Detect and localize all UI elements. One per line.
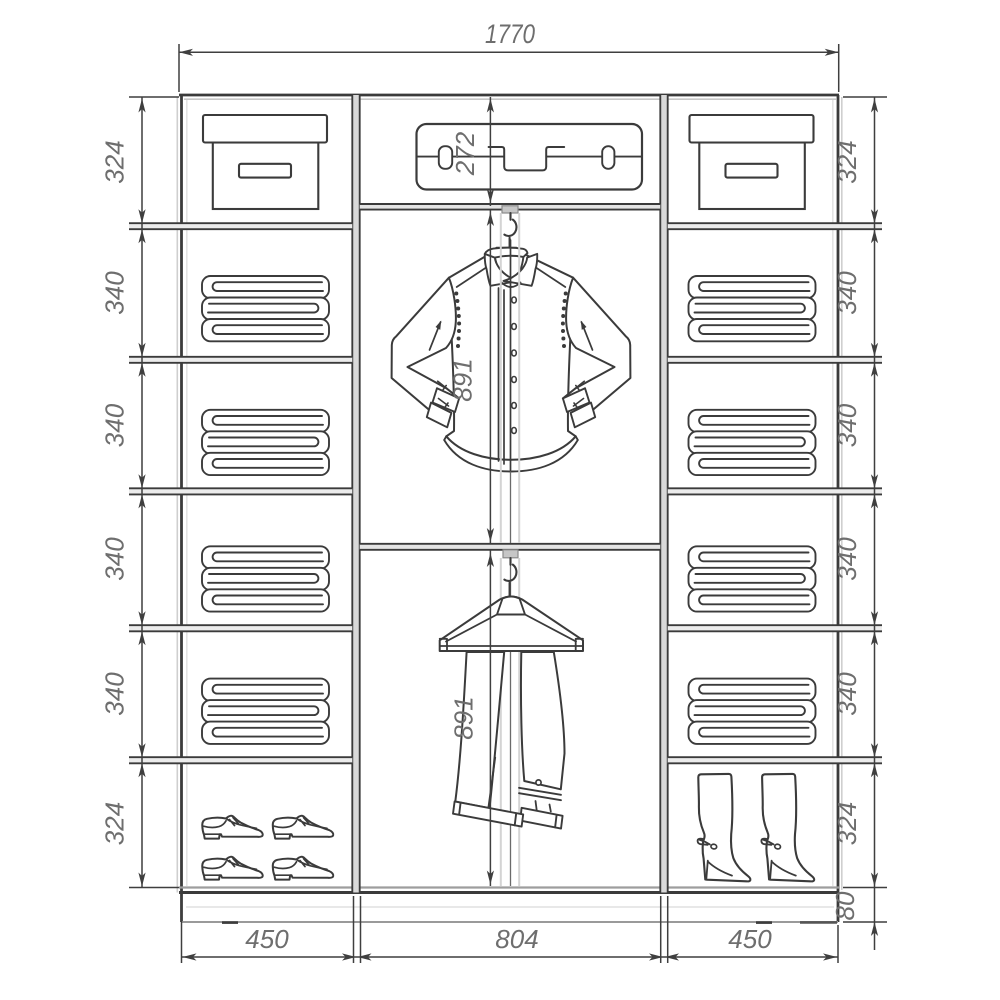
svg-text:450: 450 bbox=[245, 924, 289, 954]
svg-text:324: 324 bbox=[832, 802, 862, 845]
svg-text:804: 804 bbox=[495, 924, 538, 954]
svg-text:324: 324 bbox=[100, 802, 130, 845]
svg-text:1770: 1770 bbox=[485, 19, 535, 49]
svg-text:340: 340 bbox=[100, 271, 130, 315]
svg-text:891: 891 bbox=[449, 696, 479, 739]
svg-text:80: 80 bbox=[830, 891, 860, 920]
svg-text:340: 340 bbox=[100, 537, 130, 581]
svg-text:324: 324 bbox=[832, 140, 862, 183]
svg-text:340: 340 bbox=[832, 271, 862, 315]
svg-text:324: 324 bbox=[100, 140, 130, 183]
svg-text:340: 340 bbox=[100, 403, 130, 447]
svg-text:891: 891 bbox=[448, 358, 478, 401]
svg-text:340: 340 bbox=[832, 672, 862, 716]
svg-text:272: 272 bbox=[450, 131, 480, 176]
svg-text:340: 340 bbox=[832, 537, 862, 581]
svg-text:340: 340 bbox=[832, 403, 862, 447]
svg-text:450: 450 bbox=[728, 924, 772, 954]
svg-text:340: 340 bbox=[100, 672, 130, 716]
